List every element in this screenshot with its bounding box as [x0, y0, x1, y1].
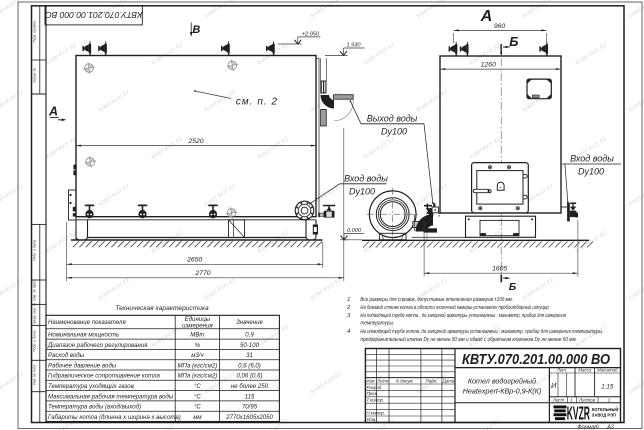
svg-text:Значение: Значение — [236, 319, 263, 326]
svg-text:Взам. инв. №: Взам. инв. № — [33, 302, 37, 323]
svg-text:В: В — [192, 24, 200, 36]
svg-text:КВТУ.070.201.00.000 ВО: КВТУ.070.201.00.000 ВО — [45, 10, 142, 20]
svg-text:50-100: 50-100 — [240, 342, 260, 349]
svg-text:Расход воды: Расход воды — [48, 352, 85, 359]
svg-text:Выход воды: Выход воды — [367, 114, 418, 124]
svg-text:На подводящей трубе котла , д: На подводящей трубе котла , до запорной … — [360, 312, 566, 319]
svg-text:Подп. и дата: Подп. и дата — [33, 330, 37, 351]
svg-text:Вход воды: Вход воды — [570, 154, 614, 164]
svg-text:2: 2 — [607, 397, 611, 402]
svg-text:2650: 2650 — [186, 256, 202, 263]
svg-text:мм: мм — [193, 414, 202, 421]
svg-text:Инв. № дубл.: Инв. № дубл. — [33, 280, 37, 301]
svg-text:Максимальная рабочая температу: Максимальная рабочая температура воды — [48, 393, 174, 400]
svg-text:КОТЕЛЬНЫЙ: КОТЕЛЬНЫЙ — [592, 407, 619, 412]
svg-text:Н.контр.: Н.контр. — [367, 410, 386, 415]
svg-text:°С: °С — [194, 393, 201, 400]
svg-text:На отводящей трубе котла ,до з: На отводящей трубе котла ,до запорной ар… — [360, 328, 603, 335]
svg-text:Перв. примен.: Перв. примен. — [33, 20, 37, 43]
svg-text:А: А — [48, 105, 58, 119]
svg-text:115: 115 — [245, 393, 255, 400]
svg-text:Гидравлическое сопротивление к: Гидравлическое сопротивление котла — [48, 373, 161, 380]
svg-text:МПа (кгс/см2): МПа (кгс/см2) — [177, 373, 217, 380]
svg-text:Т.контр.: Т.контр. — [367, 398, 385, 403]
svg-text:Лист: Лист — [552, 397, 565, 402]
svg-text:70/95: 70/95 — [242, 404, 258, 411]
svg-text:Лит.: Лит. — [556, 368, 567, 373]
svg-text:Диапазон рабочего регулировани: Диапазон рабочего регулирования — [47, 342, 148, 349]
svg-text:°С: °С — [194, 383, 201, 390]
svg-text:Dy100: Dy100 — [381, 127, 407, 137]
svg-text:Подп.: Подп. — [426, 378, 438, 383]
svg-text:Dy100: Dy100 — [578, 167, 604, 177]
svg-text:Температура воды (вход/выход): Температура воды (вход/выход) — [48, 404, 141, 411]
svg-text:Лист: Лист — [376, 378, 389, 383]
svg-text:2520: 2520 — [187, 138, 203, 145]
svg-text:°С: °С — [194, 404, 201, 411]
svg-text:не более 250: не более 250 — [231, 383, 269, 390]
svg-text:1260: 1260 — [481, 62, 496, 69]
svg-text:Рабочее давление воды: Рабочее давление воды — [48, 362, 117, 369]
svg-text:КВТУ.070.201.00.000 ВО: КВТУ.070.201.00.000 ВО — [462, 352, 610, 368]
svg-text:Подп. и дата: Подп. и дата — [33, 240, 37, 261]
svg-text:Масштаб: Масштаб — [597, 368, 618, 373]
svg-text:Heatexpert-КВр-0,9-К(К): Heatexpert-КВр-0,9-К(К) — [463, 387, 542, 396]
svg-text:Температура уходящих газов: Температура уходящих газов — [48, 383, 134, 390]
svg-text:0.000: 0.000 — [347, 228, 362, 234]
svg-text:Номинальная мощность: Номинальная мощность — [48, 332, 119, 339]
svg-text:МВт: МВт — [190, 332, 204, 339]
svg-text:Инв. № подл.: Инв. № подл. — [33, 364, 37, 385]
svg-text:МПа (кгс/см2): МПа (кгс/см2) — [177, 362, 217, 369]
svg-text:+2.050: +2.050 — [302, 31, 320, 37]
svg-text:см. п. 2: см. п. 2 — [236, 97, 278, 108]
svg-text:Котел водогрейный: Котел водогрейный — [468, 377, 536, 386]
svg-text:KVZR: KVZR — [567, 404, 590, 425]
svg-text:Б: Б — [509, 34, 518, 49]
svg-text:960: 960 — [494, 23, 506, 30]
svg-text:Утв.: Утв. — [367, 417, 377, 422]
svg-text:Техническая характеристика: Техническая характеристика — [115, 305, 209, 312]
svg-text:1605: 1605 — [492, 266, 507, 273]
svg-text:1:15: 1:15 — [601, 384, 614, 391]
svg-text:предохранительный клапан Dу н: предохранительный клапан Dу не менее 50 … — [360, 336, 577, 343]
svg-text:N докум.: N докум. — [396, 378, 414, 383]
svg-text:Б: Б — [509, 281, 517, 293]
svg-text:31: 31 — [246, 352, 253, 359]
svg-text:ЗАВОД РЭП: ЗАВОД РЭП — [592, 413, 616, 418]
svg-text:Вход воды: Вход воды — [344, 174, 388, 184]
svg-text:1: 1 — [347, 297, 350, 303]
svg-text:А3: А3 — [606, 424, 614, 430]
svg-text:4: 4 — [347, 329, 350, 335]
svg-text:Dy100: Dy100 — [349, 187, 375, 197]
svg-text:Разраб.: Разраб. — [367, 385, 383, 390]
svg-text:0,9: 0,9 — [245, 332, 254, 339]
svg-text:2770: 2770 — [194, 270, 210, 277]
svg-text:Масса: Масса — [578, 368, 592, 373]
svg-text:Пров.: Пров. — [367, 391, 379, 396]
svg-text:%: % — [195, 342, 201, 349]
svg-text:измерения: измерения — [182, 323, 213, 330]
svg-text:И: И — [551, 381, 557, 390]
svg-text:0,6 (6,0): 0,6 (6,0) — [238, 362, 261, 369]
svg-text:Наименование показателя: Наименование показателя — [48, 319, 126, 326]
svg-text:Габариты котла (длинна х ширин: Габариты котла (длинна х ширина х высота… — [48, 414, 181, 421]
svg-text:Справ. №: Справ. № — [33, 67, 37, 83]
svg-text:2770х1605х2050: 2770х1605х2050 — [225, 414, 273, 421]
svg-text:1.930: 1.930 — [347, 43, 362, 49]
svg-text:Все размеры для справок, допус: Все размеры для справок, допустимые откл… — [360, 297, 513, 303]
svg-text:Изм.: Изм. — [366, 378, 375, 383]
svg-text:м3/ч: м3/ч — [191, 352, 204, 359]
svg-text:температуры.: температуры. — [360, 320, 394, 326]
svg-text:Дата: Дата — [442, 378, 455, 383]
svg-text:А: А — [480, 8, 493, 25]
svg-text:На боковой стенке котла в обла: На боковой стенке котла в области топочн… — [360, 304, 548, 311]
svg-text:0,06 (0,6): 0,06 (0,6) — [236, 373, 262, 380]
svg-text:Листов: Листов — [578, 397, 596, 402]
svg-text:Формат: Формат — [577, 424, 599, 430]
